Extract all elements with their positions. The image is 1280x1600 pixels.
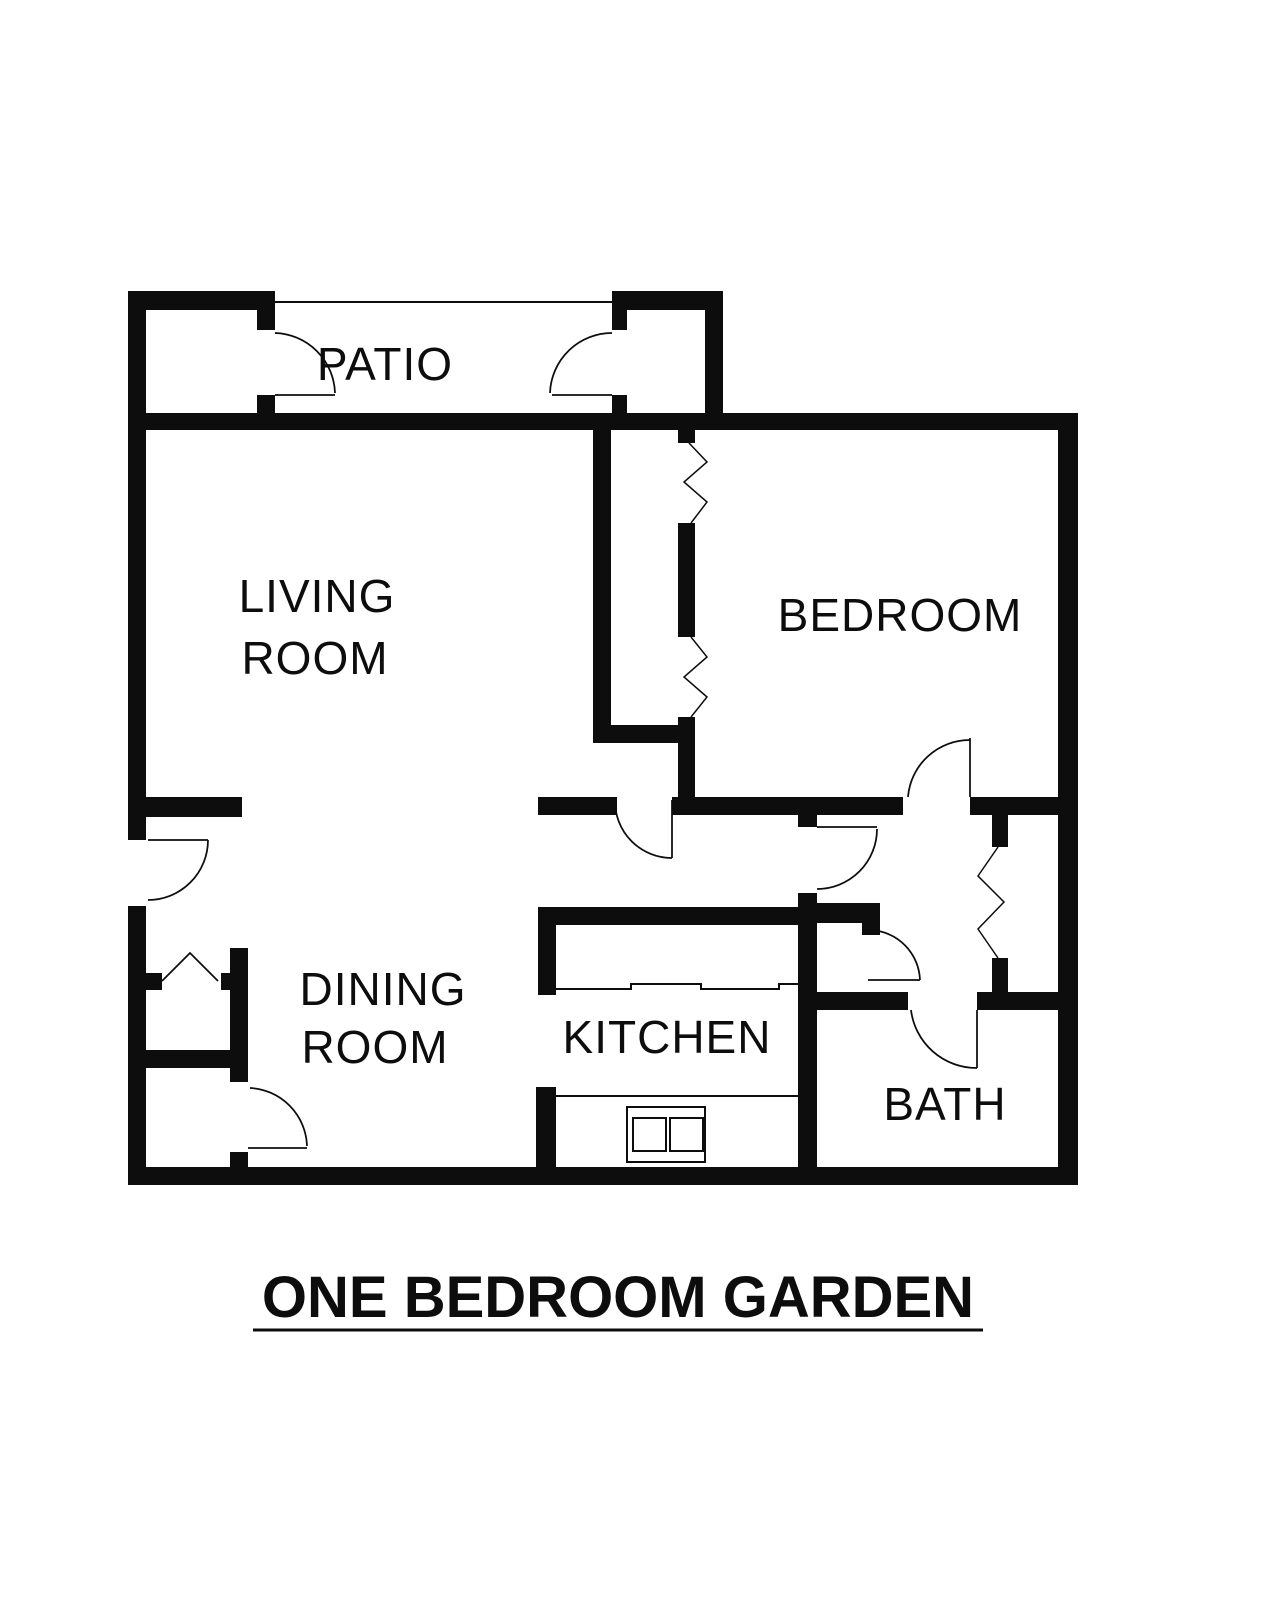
patio-right-closet-top-wall xyxy=(612,291,723,310)
kitchen-east-jamb xyxy=(798,815,817,827)
kitchen-west-wall-upper xyxy=(538,907,556,995)
living-south-wall xyxy=(538,797,617,815)
bedroom-south-wall-east xyxy=(970,797,1058,815)
hall-closet-wall xyxy=(817,903,880,923)
entry-door xyxy=(148,840,208,900)
patio-right-closet-east-wall xyxy=(705,310,723,413)
floor-plan-drawing: PATIO LIVING ROOM BEDROOM DINING ROOM KI… xyxy=(0,0,1280,1600)
west-wall-upper xyxy=(128,291,146,840)
bath-north-wall-east xyxy=(977,992,1058,1010)
patio-left-closet-jamb-upper xyxy=(257,310,275,330)
coat-closet-bottom-wall xyxy=(128,1050,248,1068)
kitchen-west-wall-lower xyxy=(536,1087,556,1167)
living-room-label-line1: LIVING xyxy=(239,570,396,622)
south-wall xyxy=(128,1167,1078,1185)
entry-stub-wall xyxy=(146,797,242,817)
interior-south-walls xyxy=(146,797,1058,817)
linen-closet-jamb-top xyxy=(992,815,1008,847)
patio-left-closet-jamb-lower xyxy=(257,395,275,413)
bedroom-door xyxy=(908,738,970,797)
accordion-door-icon xyxy=(978,847,1004,958)
north-main-wall xyxy=(128,413,1078,430)
utility-closet-door xyxy=(248,1088,307,1148)
bath-door xyxy=(911,1010,977,1068)
accordion-door-icon xyxy=(684,637,707,717)
hall-and-bath xyxy=(798,815,1058,1068)
living-room-east-wall xyxy=(593,430,611,725)
bifold-door-icon xyxy=(162,953,218,981)
kitchen-north-wall xyxy=(538,907,798,925)
utility-closet-jamb xyxy=(230,1152,248,1167)
patio-right-closet-jamb-upper xyxy=(612,310,627,330)
hall-closet-jamb xyxy=(862,923,880,935)
patio-left-closet-top-wall xyxy=(128,291,275,310)
patio-right-closet-jamb-lower xyxy=(612,395,627,413)
living-room-hall-door xyxy=(615,800,672,858)
accordion-door-icon xyxy=(684,443,707,523)
kitchen-label: KITCHEN xyxy=(563,1011,772,1063)
linen-closet-jamb-bottom xyxy=(992,958,1008,992)
patio-right-closet-door xyxy=(550,333,612,395)
bedroom-label: BEDROOM xyxy=(778,589,1023,641)
bath-label: BATH xyxy=(883,1078,1006,1130)
coat-closet-jamb-left xyxy=(146,973,162,990)
living-south-jamb xyxy=(672,797,695,815)
hall-closet-door xyxy=(868,930,920,980)
plan-title: ONE BEDROOM GARDEN xyxy=(262,1265,974,1330)
east-wall xyxy=(1058,413,1078,1185)
west-wall-lower xyxy=(128,906,146,1185)
bedroom-south-wall-west xyxy=(695,797,903,815)
closet-jamb-top xyxy=(678,430,695,443)
kitchen-area xyxy=(536,815,877,1167)
bedroom-closet-partition xyxy=(593,430,707,815)
floor-plan-page: PATIO LIVING ROOM BEDROOM DINING ROOM KI… xyxy=(0,0,1280,1600)
closet-center-post xyxy=(678,523,695,637)
dining-room-label-line1: DINING xyxy=(300,963,467,1015)
living-room-label-line2: ROOM xyxy=(241,632,388,684)
kitchen-east-wall xyxy=(798,893,817,1167)
kitchen-counter-sink xyxy=(556,984,798,989)
range-icon xyxy=(627,1107,705,1162)
bath-north-wall-west xyxy=(798,992,908,1010)
dining-closets xyxy=(128,948,307,1167)
dining-room-label-line2: ROOM xyxy=(301,1021,448,1073)
kitchen-hall-door xyxy=(817,827,877,889)
patio-label: PATIO xyxy=(317,338,453,390)
